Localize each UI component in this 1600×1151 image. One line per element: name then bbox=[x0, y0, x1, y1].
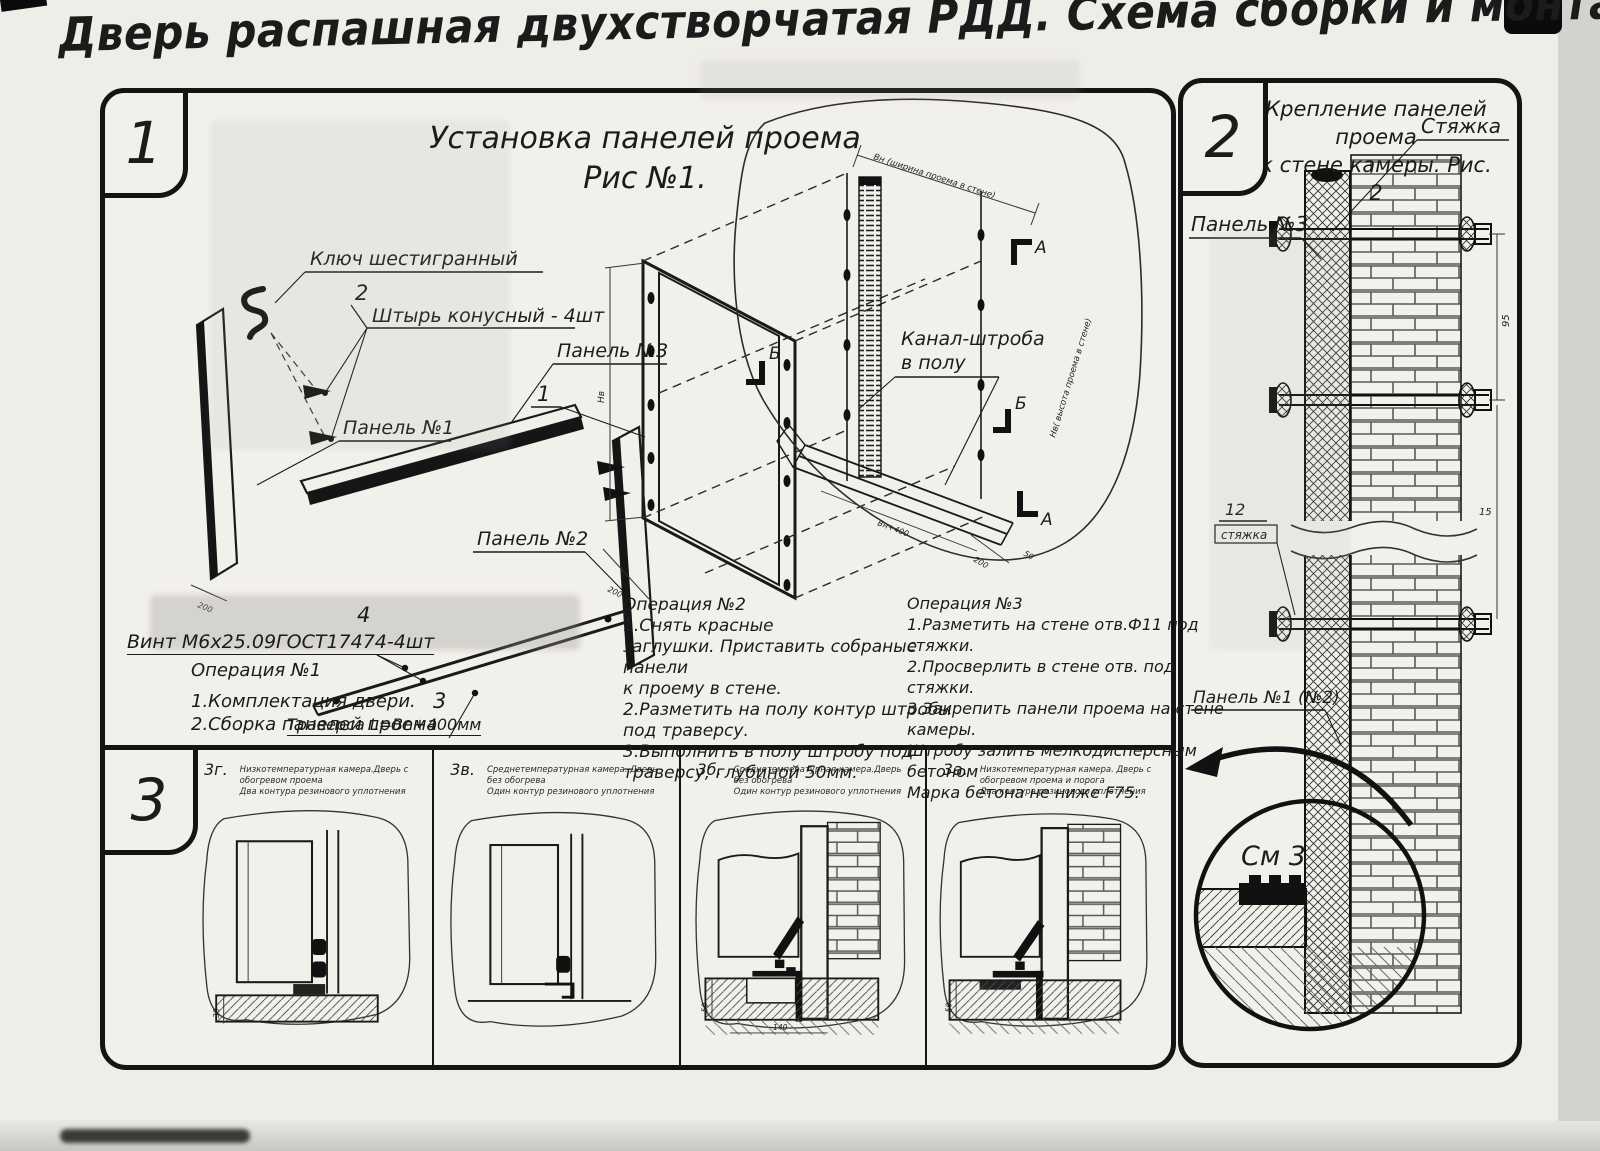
dim-width-note: Вн (ширина проема в стене) bbox=[872, 152, 996, 201]
operation-3-title: Операция №3 bbox=[907, 593, 1247, 614]
detail-3b: 3б. Среднетемпературная камера.Дверь без… bbox=[679, 750, 925, 1065]
svg-text:А: А bbox=[1040, 510, 1053, 530]
frame-fastener-dots bbox=[648, 292, 791, 591]
detail-3g-line1: Низкотемпературная камера.Дверь с обогре… bbox=[240, 765, 409, 786]
ghost-bleed bbox=[1210, 230, 1350, 650]
operation-3: Операция №3 1.Разметить на стене отв.Ф11… bbox=[907, 593, 1247, 803]
operation-3-line: 2.Просверлить в стене отв. под bbox=[907, 656, 1247, 677]
section-marker-b: Б bbox=[746, 344, 781, 385]
detail-3v: 3в. Среднетемпературная камера. Дверь бе… bbox=[432, 750, 678, 1065]
operation-2: Операция №2 1.Снять красные заглушки. Пр… bbox=[623, 595, 953, 784]
detail-3g-desc: Низкотемпературная камера.Дверь с обогре… bbox=[240, 760, 427, 798]
detail-3v-code: 3в. bbox=[450, 760, 475, 798]
operation-3-line: 3.Закрепить панели проема на стене камер… bbox=[907, 698, 1247, 740]
operation-3-line: стяжки. bbox=[907, 677, 1247, 698]
svg-text:30: 30 bbox=[212, 1008, 221, 1018]
brick-wall bbox=[1351, 155, 1461, 1013]
operation-1-title: Операция №1 bbox=[191, 659, 491, 682]
item-number-frame: 1 bbox=[537, 382, 550, 406]
section-marker-a2: А bbox=[1017, 491, 1053, 530]
detail-3g-code: 3г. bbox=[204, 760, 228, 798]
label-see3: См 3 bbox=[1241, 841, 1306, 872]
section3-badge: 3 bbox=[100, 750, 198, 855]
detail-3a-drawing: 50 bbox=[927, 798, 1171, 1048]
operation-2-line: 1.Снять красные bbox=[623, 616, 953, 637]
fig1-heading: Установка панелей проема Рис №1. bbox=[405, 119, 885, 199]
label-panel2: Панель №2 bbox=[477, 528, 588, 550]
operation-3-line: 1.Разметить на стене отв.Ф11 под bbox=[907, 614, 1247, 635]
svg-text:140: 140 bbox=[773, 1023, 788, 1032]
detail-3b-drawing: 50 140 bbox=[681, 798, 925, 1048]
detail-3g-drawing: 30 bbox=[188, 798, 432, 1048]
operation-2-line: траверсу, глубиной 50мм. bbox=[623, 763, 953, 784]
drawing-sheet: Дверь распашная двухстворчатая РДД. Схем… bbox=[0, 0, 1600, 1151]
operation-2-line: заглушки. Приставить собраные панели bbox=[623, 637, 953, 679]
fig1-heading-line1: Установка панелей проема bbox=[405, 119, 885, 159]
section-marker-b2: Б bbox=[993, 394, 1027, 433]
svg-text:Б: Б bbox=[769, 344, 781, 364]
scan-edge-right bbox=[1558, 0, 1600, 1151]
svg-text:50: 50 bbox=[700, 1002, 709, 1012]
item-number-traverse: 3 bbox=[433, 689, 446, 713]
label-channel-line1: Канал-штроба bbox=[901, 328, 1045, 350]
fig2-heading-line2: к стене камеры. Рис. 2 bbox=[1251, 151, 1501, 207]
svg-text:Нв: Нв bbox=[597, 391, 607, 403]
detail-3b-line2: Один контур резинового уплотнения bbox=[734, 787, 901, 797]
item-number-screw: 4 bbox=[357, 603, 370, 627]
svg-text:50: 50 bbox=[944, 1002, 953, 1012]
dim-15: 15 bbox=[1479, 507, 1492, 518]
operation-2-title: Операция №2 bbox=[623, 595, 953, 616]
svg-text:200: 200 bbox=[972, 555, 990, 570]
scan-smudge bbox=[60, 1129, 250, 1143]
fig2-heading: Крепление панелей проема к стене камеры.… bbox=[1251, 95, 1501, 207]
ghost-bleed bbox=[700, 60, 1080, 100]
svg-text:Б: Б bbox=[1015, 394, 1027, 414]
section2-badge: 2 bbox=[1178, 78, 1268, 196]
operation-2-line: к проему в стене. bbox=[623, 679, 953, 700]
label-channel-line2: в полу bbox=[901, 352, 966, 374]
operation-3-line: Штробу залить мелкодисперсным бетоном bbox=[907, 740, 1247, 782]
fig2-heading-line1: Крепление панелей проема bbox=[1251, 95, 1501, 151]
fig1-heading-line2: Рис №1. bbox=[405, 159, 885, 199]
section1-badge: 1 bbox=[100, 88, 188, 198]
label-traverse: Траверса L=Bn+400мм bbox=[287, 715, 481, 736]
detail-3g-line2: Два контура резинового уплотнения bbox=[240, 787, 406, 797]
label-screw: Винт М6х25.09ГОСТ17474-4шт bbox=[127, 631, 434, 655]
section-marker-a: А bbox=[1011, 238, 1047, 265]
detail-3v-line2: Один контур резинового уплотнения bbox=[487, 787, 654, 797]
svg-text:А: А bbox=[1034, 238, 1047, 258]
dim-95: 95 bbox=[1501, 314, 1512, 327]
svg-text:50: 50 bbox=[1022, 549, 1035, 562]
operation-3-line: Марка бетона не ниже F75. bbox=[907, 782, 1247, 803]
detail-3g: 3г. Низкотемпературная камера.Дверь с об… bbox=[188, 750, 432, 1065]
detail-3v-drawing bbox=[434, 798, 678, 1048]
svg-text:Вн+400: Вн+400 bbox=[876, 518, 910, 538]
wall-chase-strip bbox=[859, 177, 881, 477]
operation-2-line: 2.Разметить на полу контур штробы bbox=[623, 700, 953, 721]
operation-2-line: под траверсу. bbox=[623, 721, 953, 742]
operation-2-line: 3.Выполнить в полу штробу под bbox=[623, 742, 953, 763]
operation-3-line: стяжки. bbox=[907, 635, 1247, 656]
svg-text:200: 200 bbox=[606, 585, 624, 600]
dim-height-note: Нв( высота проема в стене) bbox=[1048, 317, 1094, 439]
